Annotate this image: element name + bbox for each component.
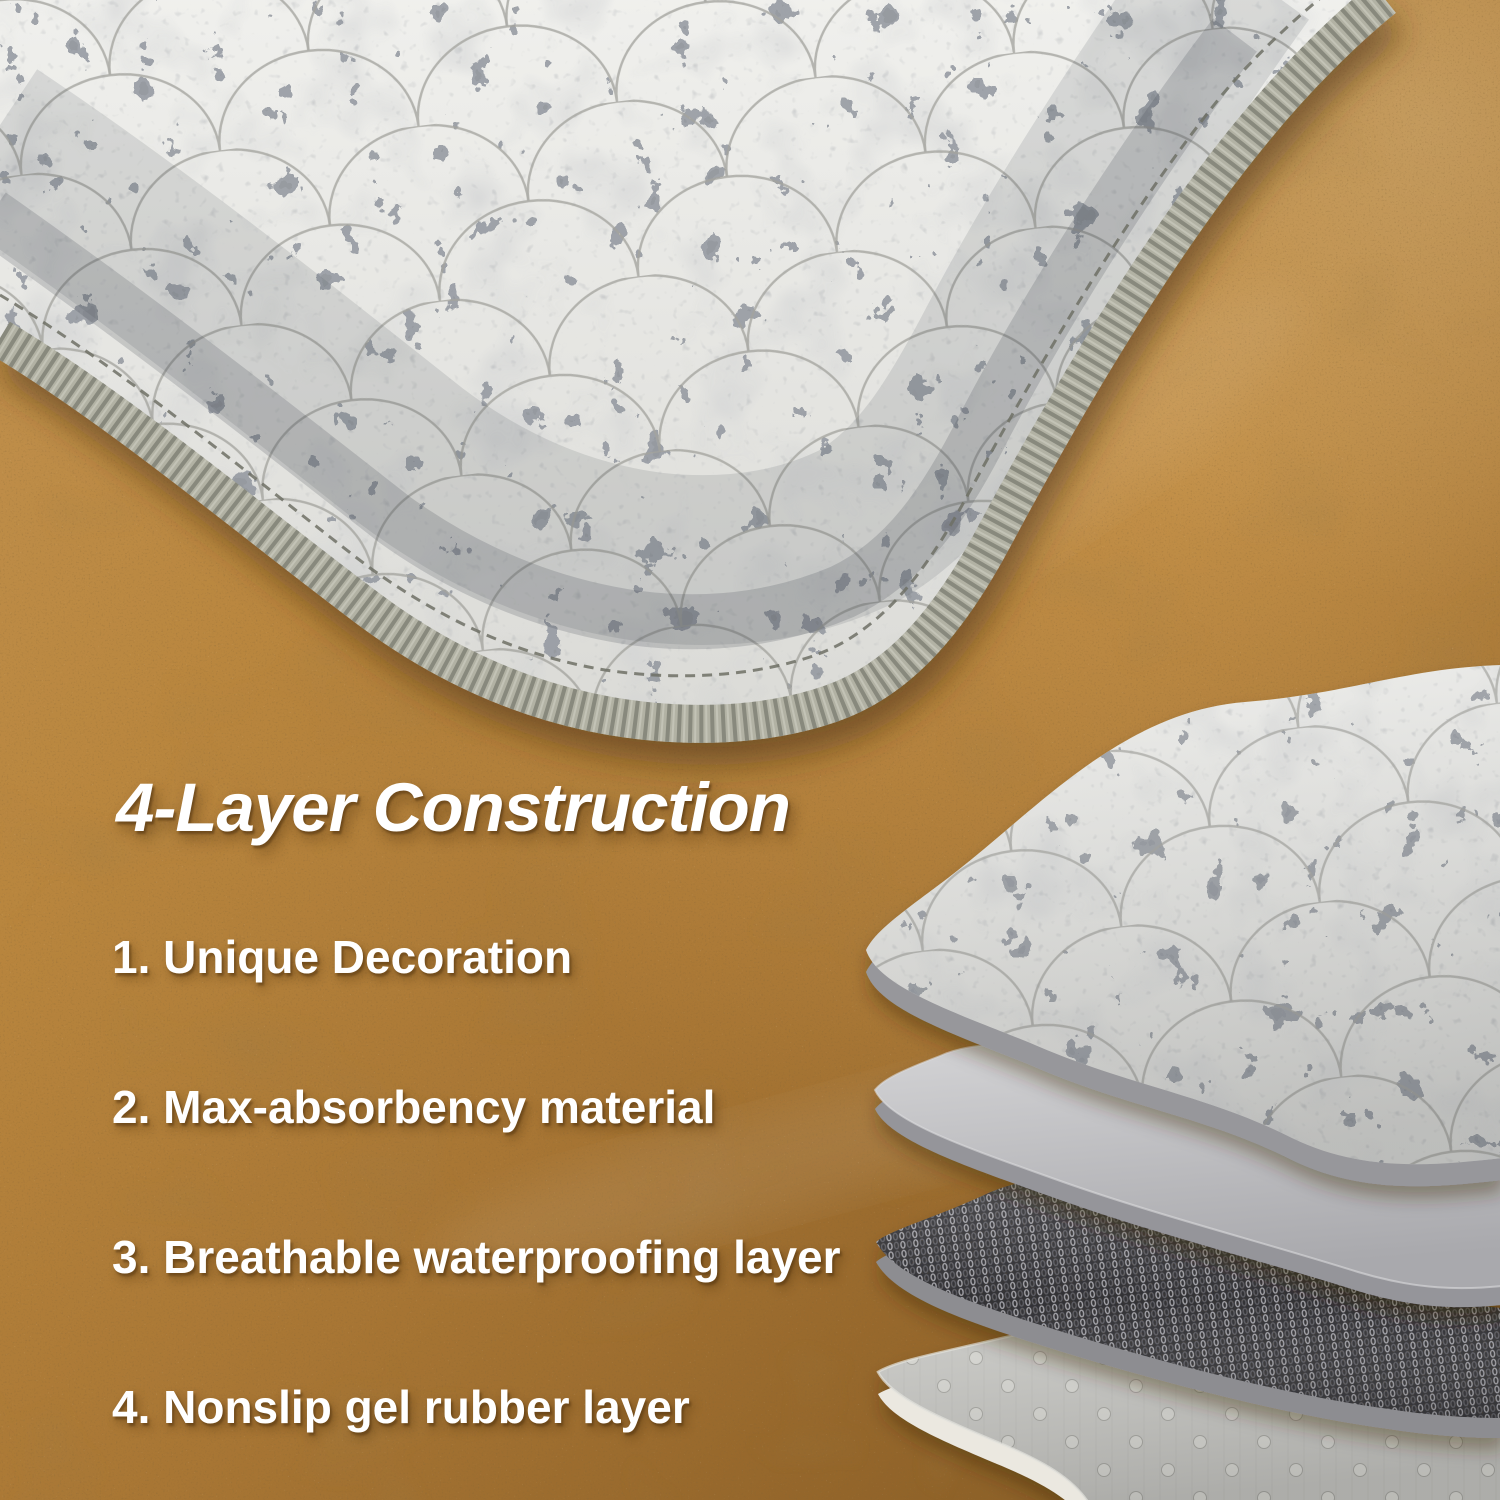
feature-item-waterproofing: 3. Breathable waterproofing layer — [112, 1230, 841, 1284]
page-title: 4-Layer Construction — [116, 768, 790, 847]
feature-item-max-absorbency: 2. Max-absorbency material — [112, 1080, 715, 1134]
product-infographic: 4-Layer Construction 1. Unique Decoratio… — [0, 0, 1500, 1500]
feature-item-nonslip-gel: 4. Nonslip gel rubber layer — [112, 1380, 690, 1434]
feature-item-unique-decoration: 1. Unique Decoration — [112, 930, 572, 984]
